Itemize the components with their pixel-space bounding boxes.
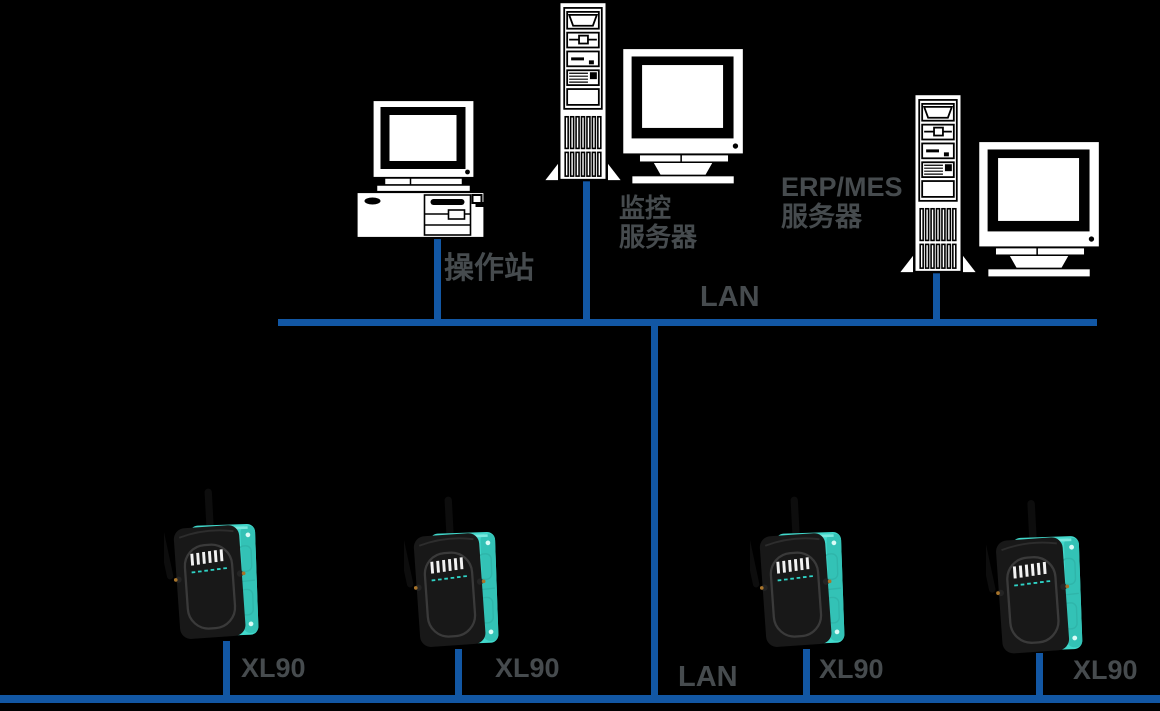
lan-trunk-line bbox=[651, 322, 658, 698]
lan-bottom-label: LAN bbox=[678, 661, 738, 693]
xl90-device-3-icon bbox=[750, 492, 850, 660]
xl90-device-2-icon bbox=[404, 492, 504, 660]
operator-station-computer-icon bbox=[350, 98, 491, 243]
erp-mes-server-label-line1: ERP/MES bbox=[781, 172, 903, 202]
monitoring-server-label-line1: 监控 bbox=[619, 194, 697, 223]
lan-top-label: LAN bbox=[700, 281, 760, 313]
erp-mes-server-label: ERP/MES 服务器 bbox=[781, 172, 903, 232]
xl90-label-1: XL90 bbox=[241, 653, 306, 683]
xl90-device-4-icon bbox=[986, 496, 1088, 666]
monitoring-server-label: 监控 服务器 bbox=[619, 194, 697, 252]
erp-mes-server-monitor-icon bbox=[973, 139, 1107, 280]
connector-monitoring-server bbox=[583, 176, 590, 322]
network-topology-diagram: 操作站 监控 服务器 ERP/MES 服务器 LAN LAN XL90 XL90… bbox=[0, 0, 1160, 711]
erp-mes-server-label-line2: 服务器 bbox=[781, 202, 903, 232]
erp-mes-server-tower-icon bbox=[890, 92, 986, 280]
xl90-label-3: XL90 bbox=[819, 654, 884, 684]
lan-top-line bbox=[278, 319, 1097, 326]
xl90-label-2: XL90 bbox=[495, 653, 560, 683]
monitoring-server-monitor-icon bbox=[617, 46, 751, 187]
operator-station-label: 操作站 bbox=[444, 252, 534, 286]
lan-bottom-line bbox=[0, 695, 1160, 703]
connector-operator-station bbox=[434, 236, 441, 322]
monitoring-server-label-line2: 服务器 bbox=[619, 223, 697, 252]
xl90-device-1-icon bbox=[164, 484, 264, 652]
xl90-label-4: XL90 bbox=[1073, 655, 1138, 685]
